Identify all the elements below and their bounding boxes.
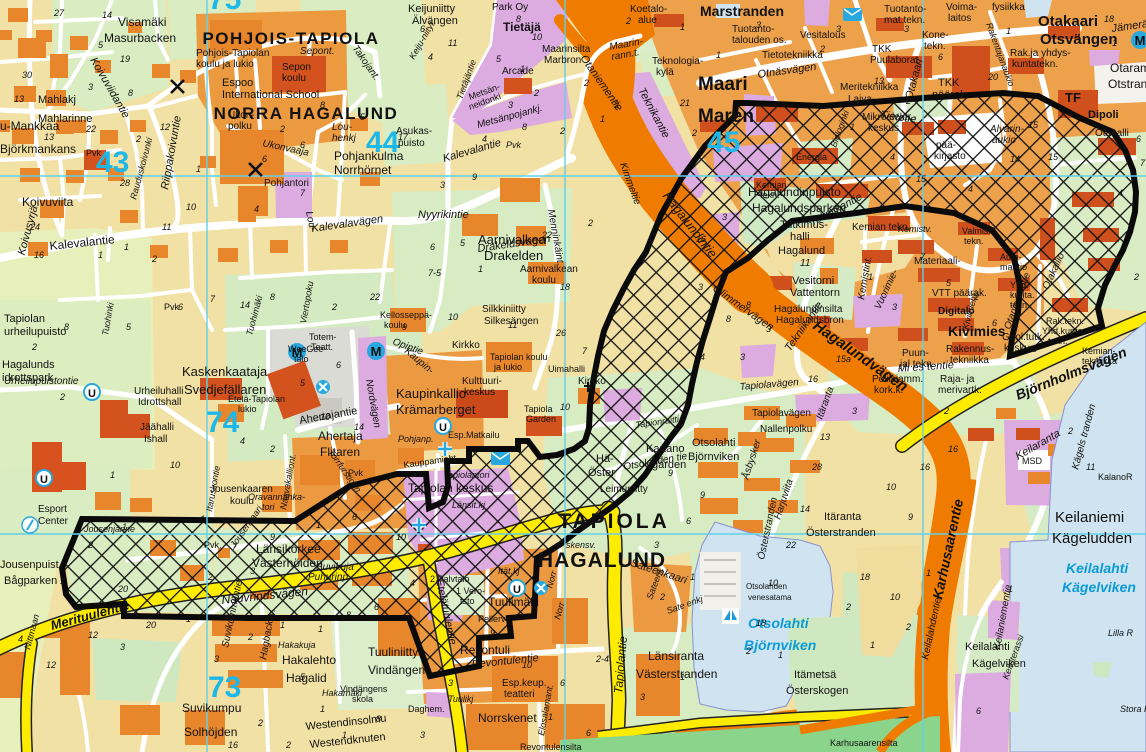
svg-text:Tapiolan koulu: Tapiolan koulu [490,352,548,362]
svg-text:11: 11 [508,320,517,330]
svg-text:16: 16 [696,234,706,244]
svg-text:Silkkiniitty: Silkkiniitty [482,304,526,315]
svg-text:Daghem.: Daghem. [408,704,445,714]
svg-text:Suvikumpu: Suvikumpu [182,701,241,715]
svg-text:1: 1 [196,164,201,174]
svg-text:henkj: henkj [332,133,357,144]
svg-text:Tuotanto-: Tuotanto- [884,4,926,15]
svg-text:alue: alue [638,15,657,26]
svg-text:ja lukio: ja lukio [493,362,522,372]
svg-text:Vattentorn: Vattentorn [790,287,840,299]
svg-text:6: 6 [976,706,981,716]
svg-text:apiolantori: apiolantori [448,470,491,480]
svg-text:4: 4 [254,204,259,214]
svg-text:tori: tori [262,502,276,512]
svg-text:Ukon-: Ukon- [228,110,255,121]
svg-text:3: 3 [440,180,445,190]
svg-text:u-Mankkaa: u-Mankkaa [0,119,60,133]
svg-text:talo: talo [294,354,309,364]
svg-text:16: 16 [34,250,44,260]
svg-text:Tuuliniitty: Tuuliniitty [368,645,418,659]
svg-text:6: 6 [430,242,435,252]
svg-text:Otakaari: Otakaari [1038,13,1098,30]
svg-text:12: 12 [160,122,170,132]
svg-text:9: 9 [700,490,705,500]
svg-text:16: 16 [948,444,958,454]
svg-text:Koetalo-: Koetalo- [630,4,667,15]
svg-text:3: 3 [250,566,255,576]
svg-text:2: 2 [559,126,565,136]
svg-text:kuntatekn.: kuntatekn. [1012,59,1058,70]
svg-text:International School: International School [222,89,319,101]
svg-text:koulu: koulu [532,275,556,286]
svg-text:päärak.: päärak. [932,89,969,101]
svg-text:10: 10 [396,532,406,542]
svg-text:Otaram: Otaram [1110,61,1146,75]
svg-text:1: 1 [1006,26,1011,36]
svg-text:Länsit.kj: Länsit.kj [452,500,486,510]
svg-text:Hagalunds: Hagalunds [2,359,55,371]
svg-text:Jäähalli: Jäähalli [140,422,174,433]
svg-text:fysiikka: fysiikka [992,2,1025,13]
svg-text:Kaskenkaataja: Kaskenkaataja [182,364,268,379]
svg-text:2: 2 [207,572,213,582]
svg-text:Espoo: Espoo [222,77,253,89]
svg-text:13: 13 [44,132,54,142]
svg-text:1: 1 [60,576,65,586]
svg-text:1: 1 [122,522,127,532]
svg-text:4: 4 [240,436,245,446]
svg-text:Mahlakj: Mahlakj [38,94,76,106]
svg-text:74: 74 [206,406,240,439]
svg-text:13: 13 [14,94,24,104]
svg-text:Länsiranta: Länsiranta [648,649,704,663]
svg-text:2-4: 2-4 [595,654,609,664]
svg-text:Totem-: Totem- [309,332,337,342]
svg-text:Keijuniitty: Keijuniitty [408,3,456,15]
svg-text:Kägeludden: Kägeludden [1052,530,1132,547]
svg-text:3: 3 [740,352,745,362]
svg-text:U: U [88,388,96,400]
svg-text:Otstran: Otstran [1108,77,1146,91]
svg-text:aukio: aukio [992,135,1016,146]
svg-text:Teatt.: Teatt. [311,342,333,352]
svg-text:10: 10 [320,412,330,422]
svg-text:6: 6 [586,728,591,738]
svg-text:16: 16 [808,374,818,384]
svg-text:20: 20 [987,72,998,82]
svg-text:24: 24 [29,222,40,232]
svg-text:3: 3 [722,212,727,222]
svg-text:Karhusaarensilta: Karhusaarensilta [830,738,898,748]
svg-text:Idrottshall: Idrottshall [138,397,181,408]
svg-text:2: 2 [625,16,631,26]
svg-text:Center: Center [38,516,69,527]
svg-text:9: 9 [908,512,913,522]
svg-text:7-5: 7-5 [428,268,442,278]
svg-text:15: 15 [916,174,927,184]
svg-text:Maari: Maari [698,74,748,95]
svg-text:14: 14 [354,422,364,432]
svg-text:10: 10 [886,482,896,492]
svg-text:Tietotekniikka: Tietotekniikka [762,50,823,61]
svg-text:Valmist.: Valmist. [962,226,993,236]
svg-text:Tuulikj: Tuulikj [448,694,474,704]
svg-text:10: 10 [560,402,570,412]
svg-text:Bågparken: Bågparken [4,575,57,587]
svg-text:TKK: TKK [938,77,960,89]
svg-text:Pvk: Pvk [348,468,364,478]
svg-text:4: 4 [1118,188,1123,198]
svg-text:Kirkko: Kirkko [578,376,606,387]
svg-text:Kellosseppä-: Kellosseppä- [380,310,432,320]
svg-text:18: 18 [756,618,766,628]
svg-text:Rak.ja yhdys-: Rak.ja yhdys- [1010,48,1071,59]
svg-text:2: 2 [583,78,589,88]
svg-text:8: 8 [746,300,751,310]
svg-text:Lilla R: Lilla R [1108,628,1134,638]
svg-text:6: 6 [1136,134,1141,144]
svg-text:keskus: keskus [868,123,899,134]
svg-text:10: 10 [532,32,542,42]
svg-text:1: 1 [850,122,855,132]
svg-text:Länsikorkee: Länsikorkee [256,542,321,556]
svg-text:Ität.kj: Ität.kj [498,566,521,576]
svg-text:1: 1 [716,50,721,60]
svg-text:9: 9 [472,172,477,182]
svg-text:10: 10 [522,660,532,670]
svg-text:3: 3 [214,654,219,664]
svg-text:TKK: TKK [872,44,892,55]
svg-text:TAPIOLA: TAPIOLA [558,510,670,533]
svg-text:1: 1 [1008,584,1013,594]
svg-text:3: 3 [120,642,125,652]
svg-text:2: 2 [151,254,157,264]
svg-text:6: 6 [262,154,267,164]
svg-text:Keilalahti: Keilalahti [1066,560,1129,576]
svg-text:10: 10 [768,578,778,588]
svg-text:8: 8 [64,322,69,332]
svg-text:Etelä-Tapiolan: Etelä-Tapiolan [228,394,285,404]
svg-text:Rak.tekn.: Rak.tekn. [1046,316,1084,326]
svg-text:koulu ja lukio: koulu ja lukio [196,59,254,70]
svg-text:2: 2 [691,128,697,138]
svg-text:Kone-: Kone- [922,30,949,41]
svg-text:tekniikka: tekniikka [950,355,989,366]
svg-text:Pohjankulma: Pohjankulma [334,149,404,163]
svg-text:Vindängen: Vindängen [368,663,425,677]
svg-text:Geol.tutk.: Geol.tutk. [1002,332,1045,343]
svg-text:Energia: Energia [796,152,827,162]
svg-text:8: 8 [270,292,275,302]
svg-text:10: 10 [170,460,180,470]
svg-text:27: 27 [53,8,65,18]
svg-text:Jousenjänne: Jousenjänne [83,524,135,534]
svg-text:4: 4 [968,184,973,194]
svg-text:6: 6 [374,602,379,612]
svg-text:1: 1 [690,572,695,582]
svg-text:2: 2 [59,392,65,402]
svg-text:Yhd.kunta-: Yhd.kunta- [1042,326,1086,336]
svg-text:Hakalehto: Hakalehto [282,653,336,667]
svg-text:Pohjois-Tapiolan: Pohjois-Tapiolan [196,48,269,59]
svg-text:urheilupuisto: urheilupuisto [4,326,66,338]
svg-text:2: 2 [135,134,141,144]
svg-text:Esp.keup.: Esp.keup. [502,678,546,689]
svg-text:4: 4 [700,352,705,362]
svg-text:1: 1 [778,650,783,660]
svg-text:Laiva-: Laiva- [848,94,875,105]
svg-text:Meritekniikka: Meritekniikka [840,82,899,93]
svg-text:Tapiola: Tapiola [524,404,553,414]
svg-text:13: 13 [874,76,884,86]
svg-text:8: 8 [128,88,133,98]
svg-text:Jousenpuist: Jousenpuist [0,559,59,571]
svg-text:15: 15 [1048,152,1059,162]
svg-text:2: 2 [1067,426,1073,436]
svg-text:M: M [1135,33,1146,48]
svg-text:Österstranden: Österstranden [806,527,876,539]
svg-text:Pvk: Pvk [506,140,522,150]
svg-text:2: 2 [31,342,37,352]
svg-text:MSD: MSD [1022,456,1043,466]
svg-text:laitos: laitos [948,13,971,24]
svg-text:Öster: Öster [588,467,615,479]
svg-text:6: 6 [336,360,341,370]
svg-text:Pohjanp.: Pohjanp. [398,434,434,444]
svg-text:11: 11 [800,258,810,269]
svg-text:9: 9 [402,322,407,332]
svg-text:2: 2 [533,88,539,98]
svg-text:3: 3 [698,282,703,292]
svg-text:1: 1 [600,114,605,124]
svg-text:Voima-: Voima- [946,2,977,13]
svg-text:3: 3 [904,24,909,34]
svg-text:Nyyrikintie: Nyyrikintie [418,209,469,221]
svg-text:Leimuniitty: Leimuniitty [600,484,648,495]
svg-text:4: 4 [482,134,487,144]
svg-text:3: 3 [88,82,93,92]
svg-text:2: 2 [845,602,851,612]
svg-text:Puun-: Puun- [902,348,929,359]
svg-text:1: 1 [200,514,205,524]
svg-text:Tapiolan keskus: Tapiolan keskus [408,481,493,495]
svg-text:tekn.: tekn. [1048,336,1068,346]
svg-text:U: U [439,422,447,434]
svg-text:2: 2 [905,96,911,106]
svg-text:28: 28 [811,462,822,472]
svg-text:Pvk.: Pvk. [204,540,222,550]
svg-text:Tuotanto-: Tuotanto- [732,24,774,35]
svg-text:kirjasto: kirjasto [934,151,966,162]
svg-text:1: 1 [680,22,685,32]
svg-text:polku: polku [228,121,252,132]
svg-text:6: 6 [992,318,997,328]
svg-text:10: 10 [890,592,900,602]
svg-text:2: 2 [331,302,337,312]
svg-text:26: 26 [555,328,566,338]
svg-text:Esp.Matkailu: Esp.Matkailu [448,430,500,440]
svg-text:8: 8 [522,122,527,132]
svg-text:Masurbacken: Masurbacken [104,31,176,45]
svg-text:3: 3 [892,302,897,312]
svg-text:Kägelviken: Kägelviken [1062,579,1136,595]
svg-text:tsto: tsto [460,596,475,606]
svg-text:2: 2 [87,540,93,550]
svg-text:15a: 15a [836,354,851,364]
svg-text:Urheiluhalli: Urheiluhalli [134,386,183,397]
svg-text:Hagalid: Hagalid [286,671,327,685]
svg-text:9: 9 [668,468,673,478]
svg-text:12: 12 [46,660,56,670]
svg-text:6: 6 [178,302,183,312]
svg-text:tekn.: tekn. [924,41,946,52]
svg-text:3: 3 [640,692,645,702]
svg-text:4: 4 [428,52,433,62]
svg-text:1: 1 [478,264,483,274]
svg-text:9: 9 [490,628,495,638]
svg-text:Sepon: Sepon [282,62,311,73]
svg-text:2: 2 [745,646,751,656]
svg-text:Puhurinp.: Puhurinp. [308,572,351,583]
svg-text:1: 1 [1112,38,1117,48]
svg-text:17: 17 [398,132,409,142]
svg-text:Björkmankans: Björkmankans [0,142,76,156]
svg-text:Ishall: Ishall [144,434,167,445]
svg-text:Itäranta: Itäranta [824,511,862,523]
svg-text:1: 1 [870,640,875,650]
svg-text:Otsolahti: Otsolahti [692,437,735,449]
svg-text:Vesitorni: Vesitorni [792,275,834,287]
svg-text:10: 10 [448,312,458,322]
svg-text:Björnviken: Björnviken [688,451,739,463]
svg-text:Kägelviken: Kägelviken [972,658,1026,670]
svg-text:1: 1 [316,520,321,530]
svg-text:Kaupinkallio: Kaupinkallio [396,386,466,401]
svg-text:6: 6 [300,140,305,150]
svg-text:2: 2 [247,632,253,642]
svg-text:Alvarin-: Alvarin- [989,124,1025,135]
svg-text:Teknologia-: Teknologia- [652,56,703,67]
svg-text:3: 3 [852,406,857,416]
svg-text:Raja- ja: Raja- ja [940,374,975,385]
svg-text:2: 2 [279,124,285,134]
svg-text:Arcade: Arcade [502,66,534,77]
svg-text:Itämetsä: Itämetsä [794,669,837,681]
svg-text:merivartk.: merivartk. [938,385,982,396]
svg-text:Tapiolan: Tapiolan [4,313,45,325]
svg-text:Kivimies: Kivimies [948,323,1006,339]
svg-text:1 Vero-: 1 Vero- [456,586,485,596]
svg-text:Keilalahti: Keilalahti [965,641,1010,653]
svg-text:14: 14 [800,504,810,514]
svg-text:1: 1 [680,672,685,682]
svg-text:venesatama: venesatama [748,593,792,602]
svg-text:talouden os.: talouden os. [732,35,787,46]
svg-text:21: 21 [679,98,690,108]
svg-text:4: 4 [18,634,23,644]
svg-text:73: 73 [208,671,241,704]
svg-text:6: 6 [686,516,691,526]
svg-text:8: 8 [346,610,351,620]
svg-text:Marstranden: Marstranden [700,3,784,19]
svg-text:18: 18 [1104,14,1114,24]
svg-text:Norrskenet: Norrskenet [478,711,537,725]
svg-text:teatteri: teatteri [504,689,535,700]
svg-text:Otahalli: Otahalli [1095,128,1129,139]
svg-text:10: 10 [186,202,196,212]
svg-text:11: 11 [162,222,171,232]
svg-text:2: 2 [1133,272,1139,282]
svg-text:2: 2 [905,622,911,632]
svg-text:8: 8 [516,14,521,24]
svg-text:Maarinsilta: Maarinsilta [542,44,591,55]
svg-text:3: 3 [756,20,761,30]
svg-text:Hakakuja: Hakakuja [278,640,316,650]
svg-text:8: 8 [376,714,381,724]
svg-text:skola: skola [352,694,373,704]
svg-text:16: 16 [920,462,930,472]
svg-text:Nallenpolku: Nallenpolku [760,424,812,435]
svg-text:Solhöjden: Solhöjden [184,725,237,739]
svg-text:28: 28 [119,178,130,188]
svg-text:Pvk: Pvk [86,148,102,158]
svg-text:6: 6 [560,678,565,688]
svg-text:Vindängens: Vindängens [340,684,388,694]
svg-text:Visamäki: Visamäki [118,15,166,29]
svg-text:14: 14 [240,300,250,310]
svg-text:Kartano: Kartano [646,443,685,455]
svg-text:2: 2 [819,44,825,54]
svg-text:1: 1 [186,614,191,624]
svg-text:22: 22 [785,540,796,550]
svg-text:14: 14 [1010,154,1020,164]
svg-text:18: 18 [560,282,570,292]
svg-text:1: 1 [320,704,325,714]
svg-text:1: 1 [236,110,241,120]
svg-text:3: 3 [836,24,841,34]
svg-text:Keilaniemi: Keilaniemi [1055,509,1124,526]
svg-text:2: 2 [943,406,949,416]
svg-text:45: 45 [707,126,740,159]
svg-text:22: 22 [85,124,96,134]
svg-text:2: 2 [269,444,275,454]
svg-text:4: 4 [890,152,895,162]
svg-text:8: 8 [1032,344,1037,354]
svg-text:lukio: lukio [238,404,257,414]
svg-text:2: 2 [613,100,619,110]
svg-text:KalanoR: KalanoR [1098,472,1133,482]
svg-text:2: 2 [257,718,263,728]
svg-text:1: 1 [868,272,873,282]
svg-text:pää-: pää- [936,140,956,151]
svg-text:11: 11 [448,38,457,48]
svg-text:Västerhöiden: Västerhöiden [252,556,323,570]
svg-text:18: 18 [860,572,870,582]
svg-text:Garden: Garden [526,414,556,424]
svg-text:Pellervo-: Pellervo- [478,614,514,624]
svg-text:2: 2 [285,740,291,750]
svg-text:Stora R: Stora R [1120,704,1146,714]
svg-text:1: 1 [548,712,553,722]
svg-text:8: 8 [726,314,731,324]
svg-text:1: 1 [342,730,347,740]
svg-text:POHJOIS-TAPIOLA: POHJOIS-TAPIOLA [202,29,379,48]
svg-text:Marbron: Marbron [544,55,581,66]
svg-text:skensv.: skensv. [566,540,596,550]
svg-text:U: U [40,474,48,486]
svg-text:11: 11 [1086,462,1095,472]
